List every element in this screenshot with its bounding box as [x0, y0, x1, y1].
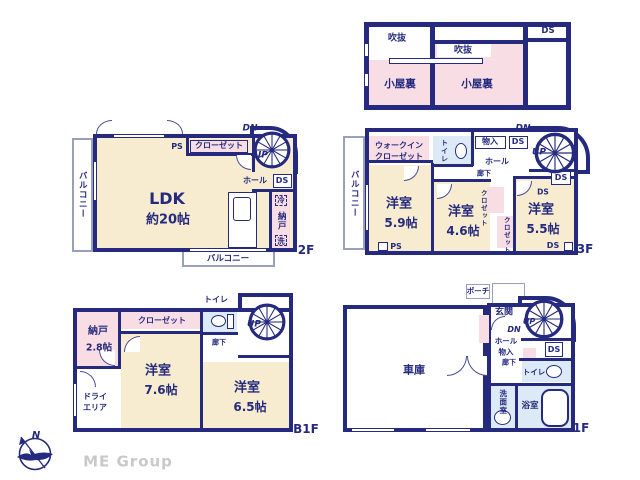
b1-nando-size: 2.8帖 [86, 343, 112, 353]
compass-north-label: N [32, 431, 40, 441]
f3-ds-room-label: DS [537, 188, 549, 196]
door-arc [96, 120, 112, 134]
wall [433, 164, 473, 167]
f3-room3-size: 5.5帖 [526, 223, 559, 235]
f3-balcony-label: バルコニー [350, 170, 359, 218]
wall [430, 27, 435, 105]
toilet-icon [455, 143, 467, 159]
f2-laundry-label: 洗 [277, 237, 285, 245]
f3-hall-label: ホール [485, 158, 509, 166]
b1-room2-name: 洋室 [234, 382, 260, 395]
wall [200, 312, 203, 428]
attic-void-left-label: 吹抜 [388, 35, 406, 44]
f3-closet-b-label: クロゼット [503, 216, 510, 254]
f3-ds-stair-label: DS [555, 174, 567, 182]
window [190, 248, 266, 252]
f2-ps-label: PS [171, 143, 183, 151]
f2-closet-label: クローゼット [195, 142, 243, 150]
f1-entrance-label: 玄関 [495, 309, 513, 318]
attic-beam [389, 58, 483, 64]
wall [431, 163, 434, 251]
bathtub-icon [541, 389, 569, 427]
window [352, 428, 394, 432]
wall [434, 179, 491, 182]
toilet-tank-icon [227, 314, 234, 329]
b1-floor-label: B1F [293, 423, 319, 435]
brand-label: ME Group [83, 455, 173, 470]
f1-washroom-label: 洗面室 [499, 389, 507, 415]
kitchen-sink-icon [233, 197, 251, 221]
f1-corridor-label: 廊下 [502, 360, 516, 367]
wall [513, 176, 516, 251]
f3-dn-label: DN [515, 125, 530, 134]
wall [238, 355, 289, 358]
f3-room1-name: 洋室 [386, 198, 412, 211]
f2-floor-label: 2F [298, 244, 315, 256]
f3-ps-box [378, 242, 388, 251]
b1-corridor-label: 廊下 [212, 340, 226, 347]
f1-hall-label: ホール [495, 337, 518, 345]
wall [491, 383, 571, 386]
f1-dn-label: DN [507, 326, 520, 334]
f3-floor-label: 3F [577, 243, 594, 255]
f1-bath-label: 浴室 [521, 402, 538, 411]
window [93, 162, 97, 200]
f1-garage-label: 車庫 [403, 365, 425, 376]
wall [121, 331, 203, 334]
f3-room3-name: 洋室 [528, 204, 554, 217]
f3-ds-bottom-box [564, 242, 573, 251]
window [426, 428, 470, 432]
toilet-icon [211, 315, 226, 327]
wall [471, 132, 474, 166]
f3-ds-top-label: DS [512, 138, 524, 146]
f2-ds-label: DS [276, 177, 288, 185]
f2-fridge-label: 冷 [277, 196, 285, 204]
window [364, 74, 369, 86]
f3-ds-bottom-label: DS [547, 242, 559, 250]
wall [435, 40, 523, 44]
toilet-icon [546, 365, 562, 378]
wall [519, 358, 571, 361]
window [365, 185, 369, 230]
f3-room2-size: 4.6帖 [446, 225, 479, 237]
f3-toilet-label: トイレ [441, 139, 448, 163]
f2-pantry-label: 納戸 [277, 212, 286, 231]
b1-up-label: UP [247, 321, 261, 330]
b1-closet-label: クローゼット [138, 317, 186, 325]
f3-wic-label-1: ウォークイン [375, 142, 423, 150]
f3-room1-size: 5.9帖 [384, 217, 417, 229]
f3-corridor-label: 廊下 [477, 171, 491, 178]
door-arc [167, 120, 183, 134]
f1-entry-strip [479, 315, 489, 343]
b1-dry-label-1: ドライ [83, 393, 107, 401]
wall [77, 366, 120, 369]
wall [515, 386, 518, 428]
f2-dn-label: DN [242, 125, 257, 134]
b1-nando-name: 納戸 [88, 327, 108, 337]
f3-closet-a-label: クロゼット [480, 189, 487, 227]
b1-room1-name: 洋室 [145, 365, 171, 378]
f3-room2-name: 洋室 [448, 206, 474, 219]
f3-wic-label-2: クローゼット [375, 153, 423, 161]
f3-ps-label: PS [390, 243, 402, 251]
attic-void-mid-label: 吹抜 [454, 47, 472, 56]
attic-ds-label: DS [541, 27, 554, 36]
wall [528, 38, 566, 42]
f3-up-label: UP [532, 149, 546, 158]
f3-closet-a [487, 187, 504, 213]
f2-balcony-bottom-label: バルコニー [207, 255, 249, 264]
f1-floor-label: 1F [573, 422, 590, 434]
b1-room2-size: 6.5帖 [233, 401, 266, 413]
b1-dry-label-2: エリア [83, 404, 107, 412]
wall [203, 332, 238, 335]
f1-toilet-label: トイレ [523, 368, 546, 376]
f2-hall-label: ホール [243, 177, 267, 185]
wall [186, 138, 189, 153]
f3-mono-label: 物入 [482, 138, 498, 146]
wall [118, 312, 121, 369]
b1-toilet-label: トイレ [204, 296, 228, 304]
window [114, 134, 164, 138]
f1-porch-label: ポーチ [467, 287, 490, 295]
f2-ldk-name: LDK [149, 191, 185, 207]
b1-room1-size: 7.6帖 [144, 384, 177, 396]
window [364, 44, 369, 56]
attic-loft-mid-label: 小屋裏 [461, 79, 493, 90]
f1-mono-label: 物入 [499, 348, 514, 356]
f2-balcony-left-label: バルコニー [78, 171, 87, 219]
f2-up-label: UP [254, 152, 268, 161]
attic-loft-left-label: 小屋裏 [384, 79, 416, 90]
wall [252, 189, 297, 192]
f2-ldk-size: 約20帖 [146, 214, 190, 227]
f1-up-label: UP [523, 318, 535, 326]
f1-ds-label: DS [548, 346, 560, 354]
window [73, 384, 77, 416]
